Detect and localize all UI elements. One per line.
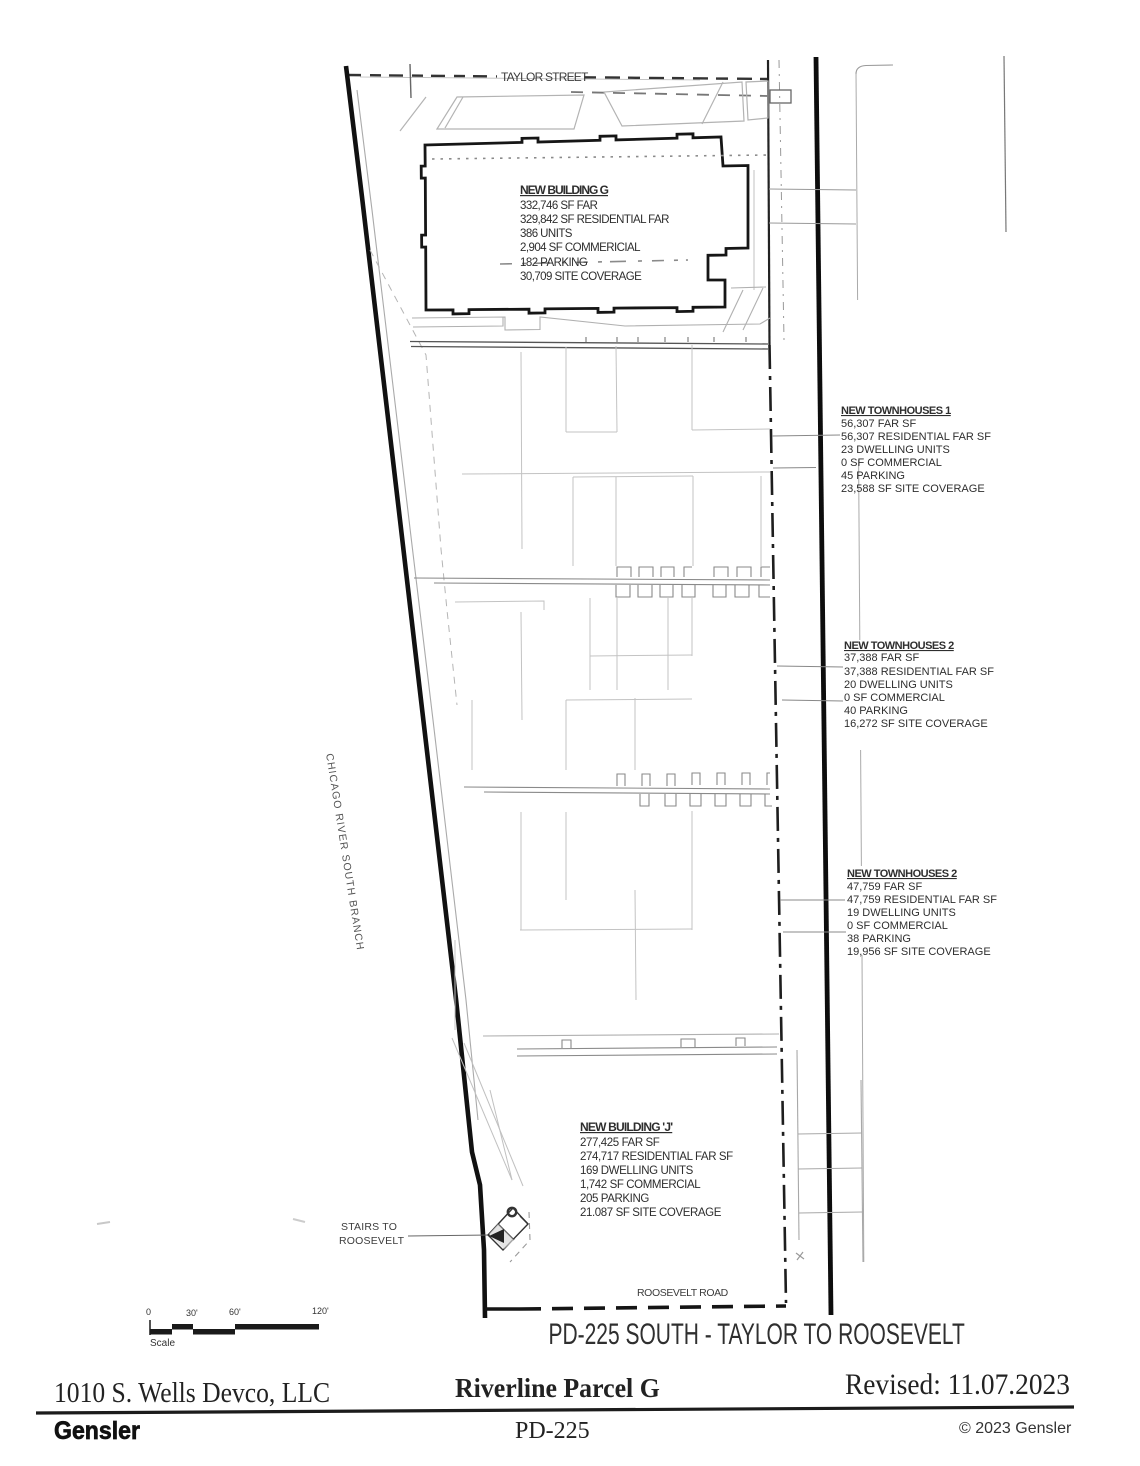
svg-text:0: 0	[146, 1307, 151, 1317]
svg-text:37,388 RESIDENTIAL FAR SF: 37,388 RESIDENTIAL FAR SF	[844, 666, 994, 678]
svg-text:ROOSEVELT ROAD: ROOSEVELT ROAD	[637, 1287, 729, 1299]
svg-text:NEW TOWNHOUSES 1: NEW TOWNHOUSES 1	[841, 405, 951, 417]
svg-text:277,425 FAR SF: 277,425 FAR SF	[580, 1137, 660, 1149]
svg-text:169 DWELLING UNITS: 169 DWELLING UNITS	[580, 1165, 694, 1177]
svg-text:30': 30'	[186, 1308, 198, 1318]
svg-text:38 PARKING: 38 PARKING	[847, 933, 911, 945]
svg-text:2,904 SF COMMERICIAL: 2,904 SF COMMERICIAL	[520, 242, 641, 254]
svg-text:STAIRS TO: STAIRS TO	[341, 1221, 397, 1233]
svg-text:120': 120'	[312, 1306, 329, 1316]
svg-text:NEW TOWNHOUSES 2: NEW TOWNHOUSES 2	[844, 640, 954, 652]
svg-text:329,842 SF RESIDENTIAL FAR: 329,842 SF RESIDENTIAL FAR	[520, 214, 669, 226]
svg-text:47,759 FAR SF: 47,759 FAR SF	[847, 881, 922, 893]
svg-text:45 PARKING: 45 PARKING	[841, 470, 905, 482]
svg-text:30,709 SITE COVERAGE: 30,709 SITE COVERAGE	[520, 271, 642, 283]
svg-text:NEW BUILDING G: NEW BUILDING G	[520, 183, 609, 197]
svg-text:TAYLOR STREET: TAYLOR STREET	[501, 70, 589, 84]
svg-text:PD-225: PD-225	[515, 1418, 590, 1444]
svg-text:332,746 SF FAR: 332,746 SF FAR	[520, 200, 598, 212]
svg-text:1,742 SF COMMERCIAL: 1,742 SF COMMERCIAL	[580, 1179, 701, 1191]
svg-text:0 SF COMMERCIAL: 0 SF COMMERCIAL	[841, 457, 942, 469]
svg-text:© 2023 Gensler: © 2023 Gensler	[959, 1420, 1072, 1437]
svg-text:Revised: 11.07.2023: Revised: 11.07.2023	[845, 1368, 1070, 1401]
svg-text:56,307 RESIDENTIAL FAR SF: 56,307 RESIDENTIAL FAR SF	[841, 431, 991, 443]
svg-text:182 PARKING: 182 PARKING	[520, 257, 588, 269]
svg-text:40 PARKING: 40 PARKING	[844, 705, 908, 717]
svg-text:16,272 SF SITE COVERAGE: 16,272 SF SITE COVERAGE	[844, 718, 988, 730]
svg-text:23,588 SF SITE COVERAGE: 23,588 SF SITE COVERAGE	[841, 483, 985, 495]
svg-text:21.087 SF SITE COVERAGE: 21.087 SF SITE COVERAGE	[580, 1207, 722, 1219]
svg-text:Scale: Scale	[150, 1338, 175, 1349]
svg-text:386 UNITS: 386 UNITS	[520, 228, 573, 240]
svg-text:20 DWELLING UNITS: 20 DWELLING UNITS	[844, 679, 953, 691]
svg-text:19,956 SF SITE COVERAGE: 19,956 SF SITE COVERAGE	[847, 946, 991, 958]
svg-text:NEW TOWNHOUSES 2: NEW TOWNHOUSES 2	[847, 868, 957, 880]
svg-text:205 PARKING: 205 PARKING	[580, 1193, 649, 1205]
svg-text:47,759 RESIDENTIAL FAR SF: 47,759 RESIDENTIAL FAR SF	[847, 894, 997, 906]
svg-text:56,307 FAR SF: 56,307 FAR SF	[841, 418, 916, 430]
svg-text:19 DWELLING UNITS: 19 DWELLING UNITS	[847, 907, 956, 919]
svg-text:Gensler: Gensler	[54, 1417, 140, 1445]
svg-text:1010 S. Wells Devco, LLC: 1010 S. Wells Devco, LLC	[54, 1377, 330, 1408]
svg-text:274,717 RESIDENTIAL FAR SF: 274,717 RESIDENTIAL FAR SF	[580, 1151, 733, 1163]
svg-text:0 SF COMMERCIAL: 0 SF COMMERCIAL	[847, 920, 948, 932]
svg-text:NEW BUILDING 'J': NEW BUILDING 'J'	[580, 1120, 673, 1134]
svg-text:Riverline Parcel G: Riverline Parcel G	[455, 1372, 660, 1403]
svg-text:23 DWELLING UNITS: 23 DWELLING UNITS	[841, 444, 950, 456]
svg-text:60': 60'	[229, 1307, 241, 1317]
svg-text:0 SF COMMERCIAL: 0 SF COMMERCIAL	[844, 692, 945, 704]
svg-text:ROOSEVELT: ROOSEVELT	[339, 1235, 405, 1247]
svg-text:PD-225 SOUTH - TAYLOR TO ROOSE: PD-225 SOUTH - TAYLOR TO ROOSEVELT	[549, 1319, 965, 1351]
svg-text:37,388 FAR SF: 37,388 FAR SF	[844, 652, 919, 664]
